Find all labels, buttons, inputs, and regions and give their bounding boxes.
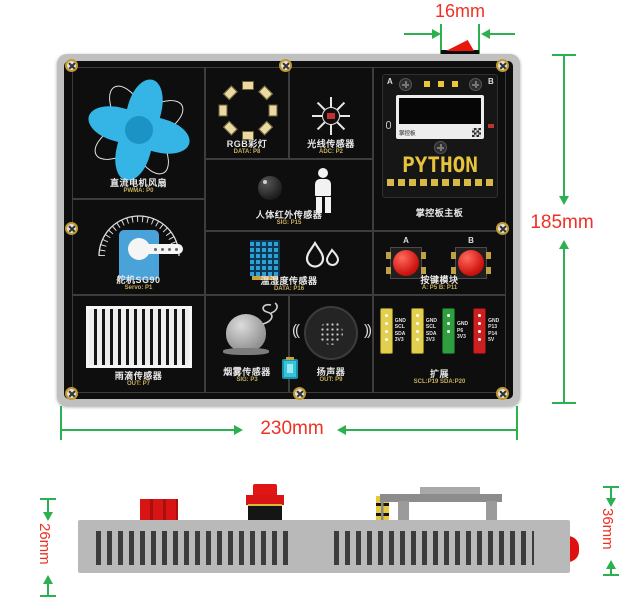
dim-line — [47, 583, 49, 595]
temp-label: 温湿度传感器 — [206, 276, 372, 286]
light-ray — [312, 115, 322, 117]
board-led — [452, 81, 458, 87]
servo-arm-hole — [175, 248, 178, 251]
arrow-up-icon — [559, 240, 569, 249]
section-fan: 直流电机风扇 PWMA: P0 — [72, 67, 205, 199]
speaker-holes — [319, 321, 343, 345]
dimension-diagram: 16mm — [0, 0, 625, 599]
pin-label: P14 — [488, 332, 499, 337]
pin-label: 3V3 — [426, 338, 437, 343]
rgb-led — [258, 85, 273, 100]
person-torso — [315, 179, 331, 196]
screw-icon — [65, 387, 78, 400]
mainboard-label: 掌控板主板 — [374, 208, 505, 218]
screw-icon — [65, 222, 78, 235]
dim-185mm-text: 185mm — [516, 212, 608, 234]
pin-label: GND — [457, 322, 468, 327]
servo-arm-hole — [161, 248, 164, 251]
person-icon — [312, 168, 334, 213]
pin-label: 3V3 — [395, 338, 406, 343]
smoke-sensor-base — [223, 348, 269, 355]
sound-wave-icon: )) — [364, 322, 370, 339]
light-ray — [340, 115, 350, 117]
connector-socket — [473, 308, 486, 354]
dim-line — [563, 54, 565, 196]
pin-label: 5V — [488, 338, 499, 343]
pin-label: SCL — [426, 325, 437, 330]
screw-icon — [293, 387, 306, 400]
water-drops-icon — [302, 240, 344, 274]
pin-label: SCL — [395, 325, 406, 330]
rgb-pin: DATA: P8 — [206, 149, 288, 156]
side-button-base — [248, 506, 282, 521]
person-head — [318, 168, 328, 178]
pin-label: SDA — [395, 332, 406, 337]
dim-16mm-text: 16mm — [428, 1, 492, 22]
board-led — [424, 81, 430, 87]
servo-label: 舵机SG90 — [73, 275, 204, 285]
dim-line — [47, 498, 49, 513]
side-enclosure — [78, 520, 570, 573]
button-pin-tab — [421, 252, 426, 259]
pir-dome-icon — [258, 176, 282, 200]
edge-connector — [387, 179, 495, 186]
panel-face: 直流电机风扇 PWMA: P0 舵机SG — [64, 61, 513, 399]
trimmer-pot — [282, 359, 298, 379]
dim-36mm-text: 36mm — [599, 508, 616, 560]
dim-line — [404, 33, 432, 35]
screw-icon — [279, 59, 292, 72]
qr-code-icon — [472, 128, 481, 137]
pir-pin: SIG: P15 — [206, 220, 372, 227]
smoke-pin: SIG: P3 — [206, 377, 288, 384]
expansion-pin: SCL:P19 SDA:P20 — [374, 379, 505, 386]
front-view-panel: 直流电机风扇 PWMA: P0 舵机SG — [57, 54, 520, 406]
pin-label: GND — [395, 319, 406, 324]
smoke-swirl-icon — [258, 300, 284, 326]
fan-hub — [125, 116, 153, 144]
pin-label: GND — [488, 319, 499, 324]
board-led — [438, 81, 444, 87]
button-pin-tab — [421, 267, 426, 274]
board-light-sensor-icon — [488, 124, 494, 128]
screw-icon — [496, 222, 509, 235]
red-button-cap — [458, 250, 484, 276]
speaker-label: 扬声器 — [290, 367, 372, 377]
section-temp: 温湿度传感器 DATA: P16 — [205, 231, 373, 295]
rain-sensor-icon — [86, 306, 192, 368]
button-b-label: B — [451, 236, 491, 245]
dim-line — [62, 429, 234, 431]
i2c-connector-yellow-1: GND SCL SDA 3V3 — [380, 308, 406, 354]
light-ray — [337, 102, 345, 110]
smoke-label: 烟雾传感器 — [206, 367, 288, 377]
rgb-led — [219, 105, 228, 117]
dim-230mm-text: 230mm — [248, 418, 336, 440]
vent-slots — [96, 531, 292, 565]
mpython-board: A B 掌控板 — [382, 74, 498, 198]
arrow-right-icon — [234, 425, 243, 435]
dim-line — [346, 429, 516, 431]
pin-label: SDA — [426, 332, 437, 337]
rain-pin: OUT: P7 — [73, 381, 204, 388]
humidity-sensor-icon — [250, 240, 280, 276]
board-logo: 掌控板 — [399, 129, 416, 137]
section-mainboard: A B 掌控板 — [373, 67, 506, 231]
dim-cap — [516, 406, 518, 440]
expansion-label: 扩展 — [374, 369, 505, 379]
arrow-left-icon — [337, 425, 346, 435]
connector-socket — [442, 308, 455, 354]
light-ray — [317, 122, 325, 130]
pin-label: 3V3 — [457, 335, 468, 340]
section-rain: 雨滴传感器 OUT: P7 — [72, 295, 205, 393]
section-buttons: A B — [373, 231, 506, 295]
screw-icon — [496, 387, 509, 400]
dim-line — [563, 249, 565, 402]
board-button-a — [399, 78, 412, 91]
board-button-b — [469, 78, 482, 91]
section-expansion: GND SCL SDA 3V3 GND SCL SDA — [373, 295, 506, 393]
button-pin-tab — [486, 252, 491, 259]
screw-icon — [496, 59, 509, 72]
button-b-label: B — [488, 77, 494, 86]
fan-pin: PWMA: P0 — [73, 188, 204, 195]
light-ray — [330, 97, 332, 107]
rgb-led — [242, 81, 254, 90]
dim-26mm-text: 26mm — [36, 523, 53, 575]
arrow-down-icon — [559, 196, 569, 205]
button-pin-tab — [386, 252, 391, 259]
pin-label: GND — [426, 319, 437, 324]
board-screen: 掌控板 — [396, 95, 484, 139]
microphone-icon — [386, 121, 391, 129]
section-rgb: RGB彩灯 DATA: P8 — [205, 67, 289, 159]
section-pir: 人体红外传感器 SIG: P15 — [205, 159, 373, 231]
buttons-label: 按键模块 — [374, 275, 505, 285]
light-pin: ADC: P2 — [290, 149, 372, 156]
red-button-cap — [393, 250, 419, 276]
pin-label: P6 — [457, 329, 468, 334]
section-light: 光线传感器 ADC: P2 — [289, 67, 373, 159]
board-display — [399, 98, 481, 124]
section-servo: 舵机SG90 Servo: P1 — [72, 199, 205, 295]
dim-cap — [40, 595, 56, 597]
side-red-connector — [140, 499, 178, 521]
io-connector-green: GND P6 3V3 — [442, 308, 468, 354]
dim-line — [489, 33, 515, 35]
servo-arm-hole — [154, 248, 157, 251]
arrow-down-icon — [606, 498, 616, 507]
button-pin-tab — [386, 267, 391, 274]
rgb-led — [223, 121, 238, 136]
servo-arm-hole — [168, 248, 171, 251]
light-ray — [330, 125, 332, 135]
button-a-label: A — [387, 77, 393, 86]
sound-wave-icon: (( — [292, 322, 298, 339]
buttons-pin: A: P5 B: P11 — [374, 285, 505, 292]
section-speaker: (( )) 扬声器 OUT: P9 — [289, 295, 373, 393]
dim-cap — [60, 406, 62, 440]
speaker-pin: OUT: P9 — [290, 377, 372, 384]
side-standoff — [486, 501, 497, 521]
light-ray — [337, 122, 345, 130]
light-label: 光线传感器 — [290, 139, 372, 149]
connector-socket — [411, 308, 424, 354]
servo-hub — [128, 238, 150, 260]
rgb-led — [223, 85, 238, 100]
rgb-label: RGB彩灯 — [206, 139, 288, 149]
rain-label: 雨滴传感器 — [73, 371, 204, 381]
servo-pin: Servo: P1 — [73, 285, 204, 292]
rgb-led — [258, 121, 273, 136]
dim-cap — [552, 402, 576, 404]
speaker-icon — [304, 306, 358, 360]
i2c-connector-yellow-2: GND SCL SDA 3V3 — [411, 308, 437, 354]
rgb-led — [269, 105, 278, 117]
arrow-down-icon — [43, 512, 53, 521]
vent-slots — [334, 531, 534, 565]
temp-pin: DATA: P16 — [206, 286, 372, 293]
section-smoke: 烟雾传感器 SIG: P3 — [205, 295, 289, 393]
fan-label: 直流电机风扇 — [73, 178, 204, 188]
button-pin-tab — [451, 267, 456, 274]
pir-label: 人体红外传感器 — [206, 210, 372, 220]
button-a-label: A — [386, 236, 426, 245]
pin-label: P13 — [488, 325, 499, 330]
button-pin-tab — [486, 267, 491, 274]
side-standoff — [398, 501, 409, 521]
dim-cap — [603, 574, 619, 576]
connector-socket — [380, 308, 393, 354]
button-pin-tab — [451, 252, 456, 259]
light-chip — [327, 113, 335, 119]
power-connector-red: GND P13 P14 5V — [473, 308, 499, 354]
screw-icon — [65, 59, 78, 72]
gold-touch-pads: PYTHON — [383, 155, 497, 176]
